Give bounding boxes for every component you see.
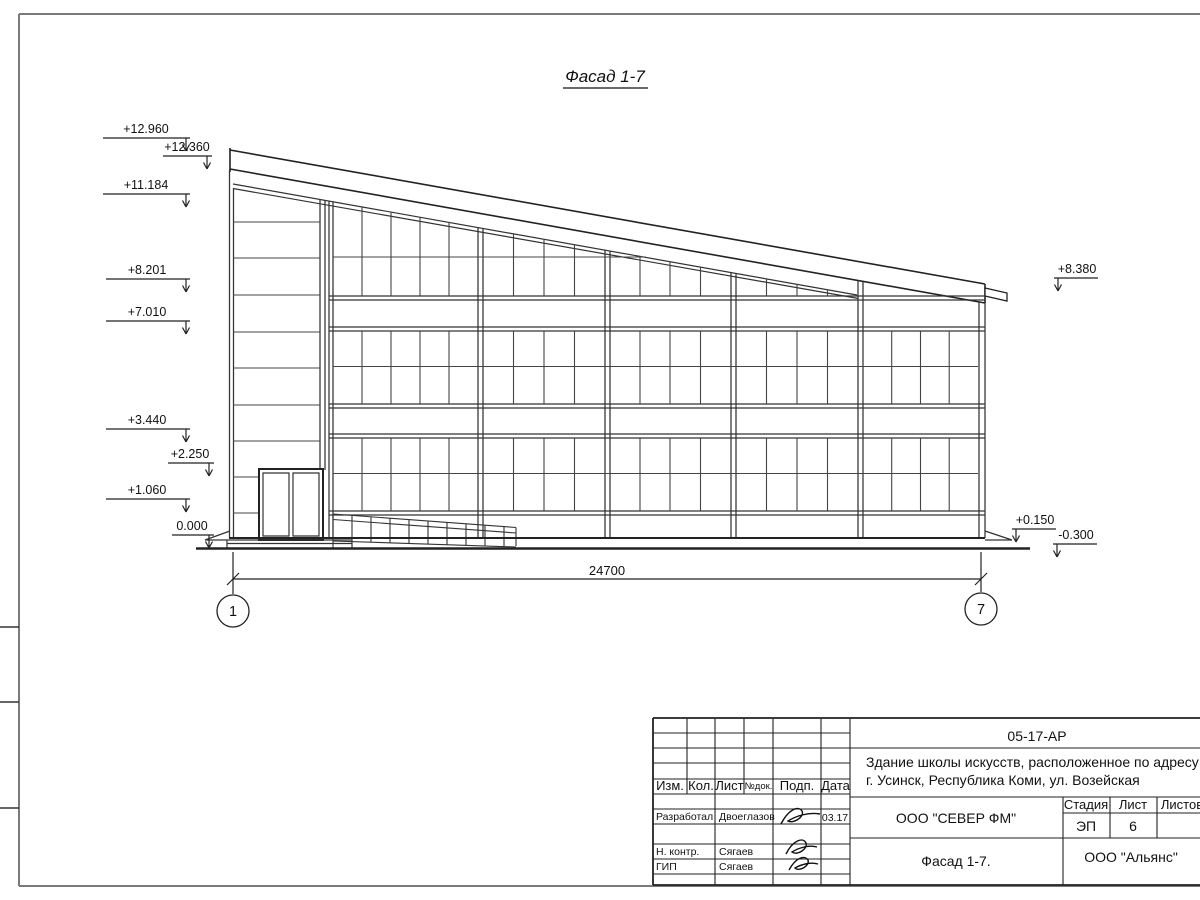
middle-window-band [333, 331, 978, 404]
entrance-steps [205, 531, 1012, 548]
sheet-label: Лист [1119, 797, 1147, 812]
elevation-label: 0.000 [176, 519, 207, 533]
row3-name: Сягаев [719, 861, 754, 873]
view-title-text: Фасад 1-7 [565, 67, 645, 86]
grid-axis-7: 7 [977, 602, 985, 618]
signatures [781, 809, 820, 870]
elevation-label: +12.360 [164, 140, 210, 154]
elevation-label: +8.380 [1058, 262, 1097, 276]
col-header-data: Дата [821, 778, 851, 793]
signature-developer [781, 809, 820, 824]
access-ramp [333, 514, 516, 548]
col-header-kol: Кол. [688, 778, 714, 793]
elevation-labels-right: +8.380 +0.150 -0.300 [1016, 262, 1097, 542]
project-line2: г. Усинск, Республика Коми, ул. Возейска… [866, 772, 1140, 788]
row1-name: Двоеглазов [719, 811, 775, 823]
facade-drawing-svg: Фасад 1-7 [0, 0, 1200, 900]
heavy-transoms [329, 296, 985, 515]
doc-number: 05-17-АР [1007, 728, 1066, 744]
project-line1: Здание школы искусств, расположенное по … [866, 754, 1200, 770]
client-name: ООО "Альянс" [1084, 849, 1178, 865]
elevation-label: +1.060 [128, 483, 167, 497]
row2-role: Н. контр. [656, 846, 699, 858]
drawing-sheet: Фасад 1-7 [0, 0, 1200, 900]
drawing-name: Фасад 1-7. [921, 853, 990, 869]
stage-label: Стадия [1064, 797, 1108, 812]
elevation-label: +3.440 [128, 413, 167, 427]
lower-window-band [333, 438, 978, 511]
row1-role: Разработал [656, 811, 713, 823]
title-block-columns [687, 718, 850, 885]
margin-tick-marks [0, 627, 19, 808]
dimension-text: 24700 [589, 563, 625, 578]
elevation-label: +7.010 [128, 305, 167, 319]
row2-name: Сягаев [719, 846, 754, 858]
elevation-label: +2.250 [171, 447, 210, 461]
row1-date: 03.17 [822, 812, 848, 824]
roof-drain-spout [985, 288, 1007, 301]
entrance-door [259, 469, 323, 540]
col-header-list: Лист [715, 778, 743, 793]
signature-ncontr [786, 840, 817, 854]
sheets-label: Листов [1161, 797, 1200, 812]
dimension-and-grid: 24700 1 7 [217, 552, 997, 627]
sheet-value: 6 [1129, 818, 1137, 834]
facade-building [196, 148, 1030, 549]
elevation-label: -0.300 [1058, 528, 1093, 542]
view-title: Фасад 1-7 [563, 67, 648, 88]
elevation-label: +12.960 [123, 122, 169, 136]
elevation-labels-left: +12.960 +12.360 +11.184 +8.201 +7.010 +3… [123, 122, 210, 533]
grid-axis-1: 1 [229, 604, 237, 620]
elevation-label: +8.201 [128, 263, 167, 277]
elevation-label: +11.184 [124, 178, 169, 192]
stage-value: ЭП [1076, 818, 1096, 834]
title-block: Изм. Кол. Лист №док. Подп. Дата Разработ… [653, 718, 1200, 885]
col-header-podp: Подп. [780, 778, 815, 793]
col-header-dok: №док. [745, 781, 773, 792]
walls-major-columns [230, 170, 986, 538]
col-header-izm: Изм. [656, 778, 684, 793]
row3-role: ГИП [656, 861, 677, 873]
clerestory-glazing [333, 207, 828, 296]
elevation-label: +0.150 [1016, 513, 1055, 527]
company-name: ООО "СЕВЕР ФМ" [896, 810, 1016, 826]
roof-fascia [230, 148, 1007, 303]
